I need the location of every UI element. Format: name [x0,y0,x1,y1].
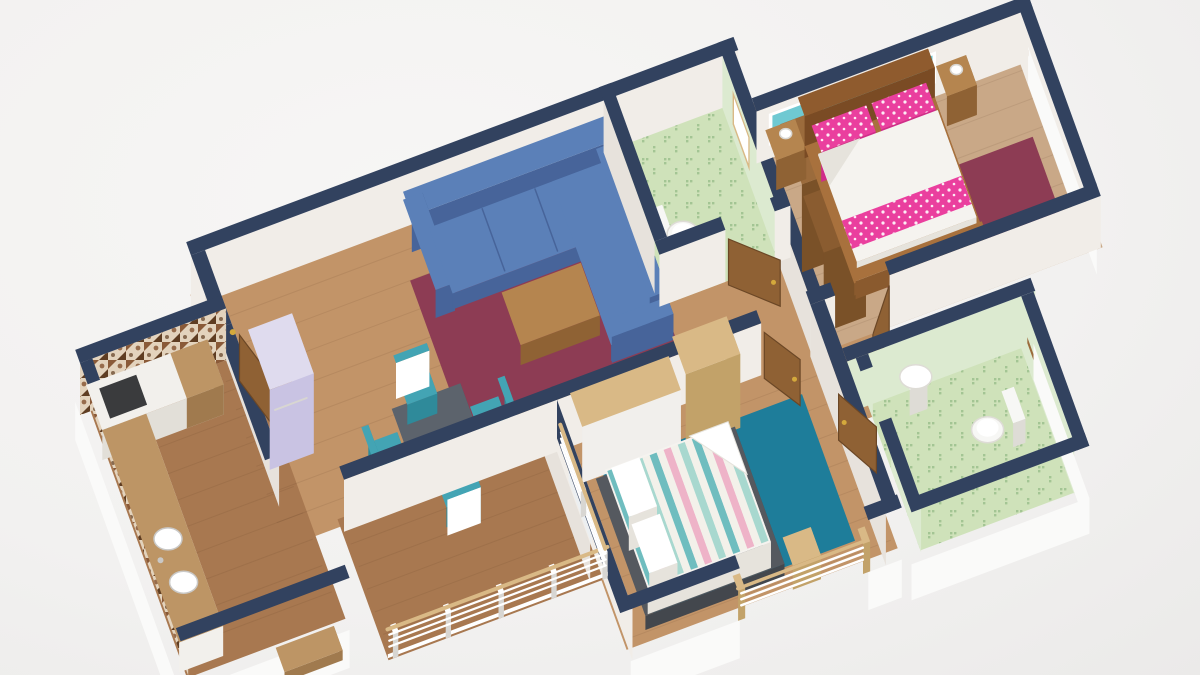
sink-basin-2 [170,571,198,593]
bathroom-top-south-wall-face-b [775,206,791,264]
toilet-right-seat [977,419,999,437]
sink-basin-1 [154,528,182,550]
bathroom-top-door-handle [771,280,776,285]
bedroom-striped-door-handle [792,377,797,382]
floorplan-3d-render [0,0,1200,675]
lamp-left [780,129,792,139]
bedroom-striped-south-wall-outer-b [868,560,902,611]
fridge-front [270,373,314,470]
wall-hook [230,329,236,335]
sink-faucet [158,557,164,563]
lamp-right [950,65,962,75]
toilet-right-tank-front [1013,419,1025,448]
window-rail-frame-right-front [863,541,870,574]
bathroom-right-door-handle [842,420,847,425]
sink-basin-right [900,365,932,389]
apartment-render: 3D isometric floor plan render of a two-… [0,0,1200,675]
